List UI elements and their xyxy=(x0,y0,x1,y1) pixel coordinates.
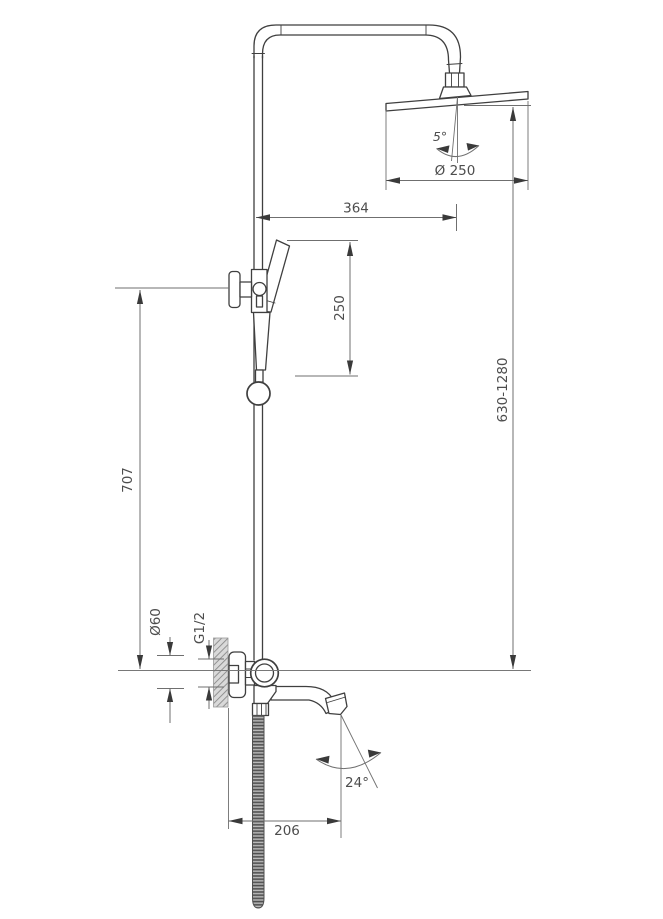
dim-g12-label: G1/2 xyxy=(192,612,208,644)
valve-lower-body xyxy=(254,686,276,704)
dim-height-range-label: 630-1280 xyxy=(495,358,511,423)
slider-ring xyxy=(247,382,270,405)
handle-stub xyxy=(256,370,264,382)
dim-24deg-label: 24° xyxy=(345,775,369,791)
shower-column-drawing: 364 5° Ø 250 630-1280 707 xyxy=(0,0,663,919)
dim-head-diameter: Ø 250 xyxy=(386,101,528,190)
dim-top-offset: 364 xyxy=(256,201,457,232)
dim-bar-height: 707 xyxy=(115,288,229,669)
diverter-knob xyxy=(251,659,279,687)
dim-head-diameter-label: Ø 250 xyxy=(435,163,476,179)
dim-spout-reach: 206 xyxy=(229,708,342,839)
dim-hand-shower-travel: 250 xyxy=(287,241,358,377)
dim-364-label: 364 xyxy=(343,201,369,217)
technical-drawing-page: 364 5° Ø 250 630-1280 707 xyxy=(0,0,663,919)
holder-knob xyxy=(229,272,240,308)
holder-pivot xyxy=(253,283,266,296)
escutcheon-slot xyxy=(229,666,239,684)
dim-spout-angle: 24° xyxy=(316,715,381,838)
bath-spout xyxy=(271,687,347,715)
dim-adjustable-height: 630-1280 xyxy=(464,106,531,670)
dim-250-label: 250 xyxy=(332,295,348,321)
hand-shower-handle xyxy=(254,313,271,371)
hand-shower xyxy=(229,240,290,405)
dim-5deg-label: 5° xyxy=(433,129,447,144)
holder-stem xyxy=(240,282,252,297)
dim-206-label: 206 xyxy=(274,823,300,839)
shower-arm xyxy=(252,25,462,73)
shower-hose xyxy=(253,716,265,909)
head-connector-nut xyxy=(446,73,465,87)
dim-60-label: Ø60 xyxy=(148,608,164,636)
wall-hatch xyxy=(214,638,229,707)
mixer-valve xyxy=(229,652,278,716)
dim-707-label: 707 xyxy=(120,467,136,493)
holder-slot xyxy=(257,296,263,307)
dim-escutcheon-diameter: Ø60 xyxy=(148,608,184,723)
